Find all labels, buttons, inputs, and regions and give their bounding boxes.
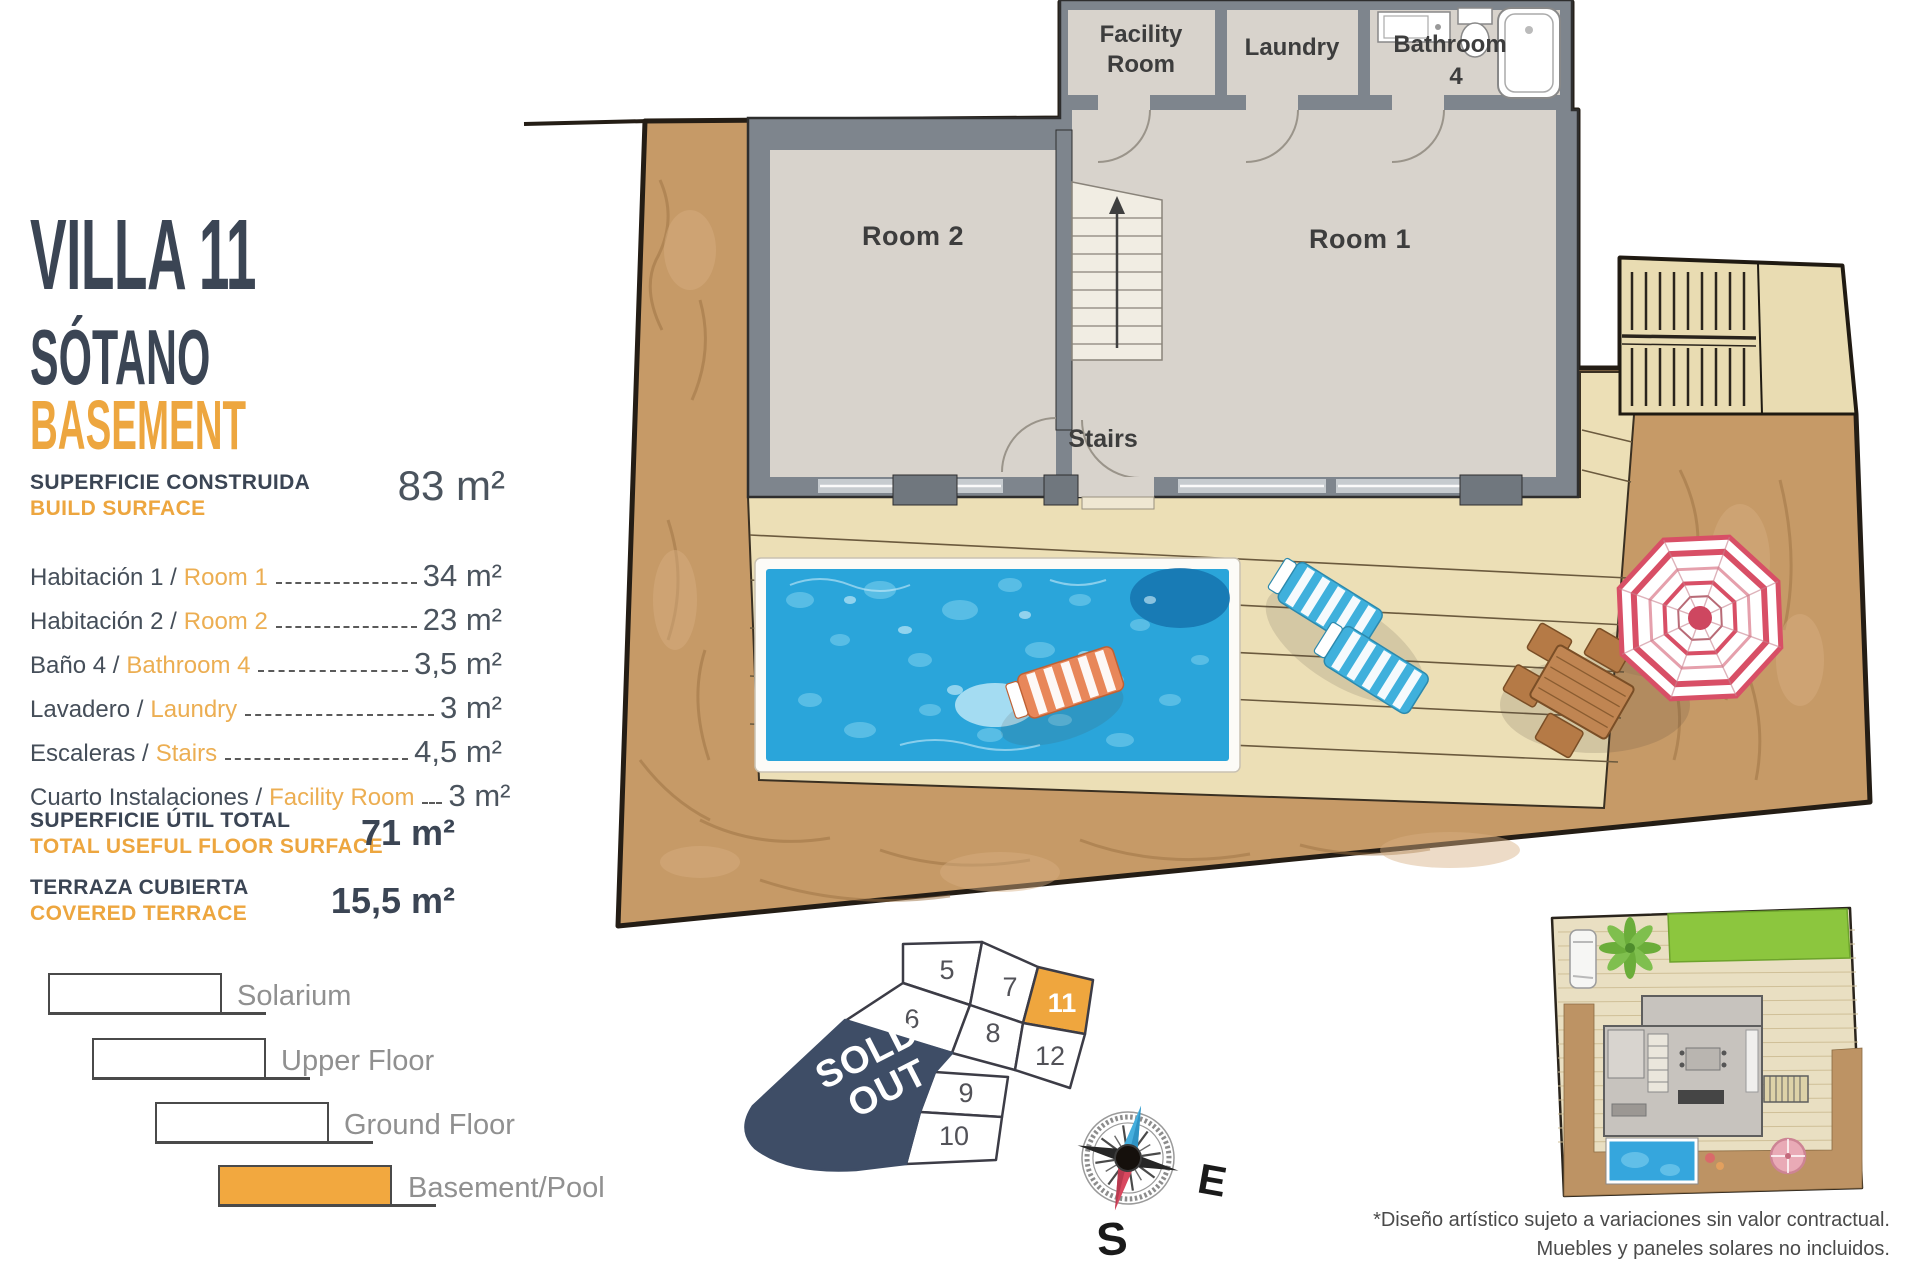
- compass-east-label: E: [1194, 1155, 1230, 1206]
- external-staircase: [1620, 258, 1856, 414]
- villa-title: VILLA 11: [30, 205, 256, 305]
- row-label-en: Room 1: [184, 564, 268, 596]
- legend-bar-solarium: [48, 973, 222, 1015]
- legend-line: [218, 1204, 436, 1207]
- stairs-treads: [1072, 182, 1162, 360]
- mini-pool: [1606, 1138, 1698, 1184]
- mini-palm-tree: [1599, 917, 1661, 979]
- key-plot-12-label: 12: [1035, 1041, 1065, 1071]
- row-value: 3 m²: [440, 690, 502, 728]
- disclaimer-line-2: Muebles y paneles solares no incluidos.: [1373, 1235, 1890, 1264]
- row-label-en: Stairs: [156, 740, 217, 772]
- row-label-en: Bathroom 4: [126, 652, 250, 684]
- dotted-leader: [258, 670, 408, 672]
- legend-label-ground-floor: Ground Floor: [344, 1109, 515, 1142]
- row-value: 3,5 m²: [414, 646, 502, 684]
- stairs-label: Stairs: [1068, 425, 1137, 453]
- dotted-leader: [225, 758, 408, 760]
- floor-title-es: SÓTANO: [30, 318, 210, 396]
- legend-line: [92, 1077, 310, 1080]
- table-row: Escaleras / Stairs 4,5 m²: [30, 728, 502, 772]
- bathtub-icon: [1498, 8, 1560, 98]
- room2-floor: [770, 150, 1056, 477]
- disclaimer-line-1: *Diseño artístico sujeto a variaciones s…: [1373, 1206, 1890, 1235]
- room2-label: Room 2: [862, 221, 964, 251]
- row-label-es: Habitación 1 /: [30, 564, 177, 596]
- mini-car: [1570, 930, 1596, 988]
- dotted-leader: [422, 802, 442, 804]
- dotted-leader: [245, 714, 434, 716]
- key-plot-9-label: 9: [958, 1078, 973, 1108]
- compass-icon: [1064, 1093, 1191, 1223]
- table-row: Habitación 1 / Room 1 34 m²: [30, 552, 502, 596]
- mini-deco-red: [1705, 1153, 1715, 1163]
- legend-line: [155, 1141, 373, 1144]
- row-value: 34 m²: [423, 558, 502, 596]
- mini-ext-stair: [1764, 1076, 1808, 1102]
- mini-site-plan: [1552, 908, 1862, 1196]
- key-plot-7-label: 7: [1002, 972, 1017, 1002]
- room1-label: Room 1: [1309, 224, 1411, 254]
- dotted-leader: [276, 626, 417, 628]
- compass-south-label: S: [1094, 1211, 1129, 1265]
- covered-terrace-value: 15,5 m²: [300, 880, 455, 922]
- facility-room-label-2: Room: [1107, 51, 1175, 78]
- table-row: Baño 4 / Bathroom 4 3,5 m²: [30, 640, 502, 684]
- legend-bar-ground-floor: [155, 1102, 329, 1144]
- key-plot-11-label: 11: [1048, 988, 1077, 1018]
- total-useful-value: 71 m²: [300, 812, 455, 854]
- row-label-es: Baño 4 /: [30, 652, 119, 684]
- row-value: 23 m²: [423, 602, 502, 640]
- mini-deco-orange: [1716, 1162, 1724, 1170]
- row-value: 4,5 m²: [414, 734, 502, 772]
- legend-label-upper-floor: Upper Floor: [281, 1045, 434, 1078]
- bathroom-label-1: Bathroom: [1393, 31, 1506, 58]
- legend-label-solarium: Solarium: [237, 980, 351, 1013]
- key-plot-5-label: 5: [939, 955, 954, 985]
- row-label-es: Lavadero /: [30, 696, 143, 728]
- dotted-leader: [276, 582, 417, 584]
- key-plot-8-label: 8: [985, 1018, 1000, 1048]
- mini-parasol: [1771, 1139, 1805, 1173]
- table-row: Lavadero / Laundry 3 m²: [30, 684, 502, 728]
- row-label-en: Room 2: [184, 608, 268, 640]
- row-label-es: Habitación 2 /: [30, 608, 177, 640]
- swimming-pool: [755, 558, 1240, 772]
- mini-lawn: [1668, 909, 1850, 962]
- build-surface-value: 83 m²: [375, 462, 505, 510]
- floor-title-en: BASEMENT: [30, 390, 246, 460]
- building: Room 2 Room 1 Stairs Facility Room Laund…: [748, 0, 1578, 509]
- legend-bar-upper-floor: [92, 1038, 266, 1080]
- table-row: Habitación 2 / Room 2 23 m²: [30, 596, 502, 640]
- legend-label-basement-pool: Basement/Pool: [408, 1172, 605, 1205]
- row-label-es: Escaleras /: [30, 740, 149, 772]
- plot-boundary-line: [524, 121, 648, 124]
- key-plot-10-label: 10: [939, 1121, 969, 1151]
- legend-bar-basement-pool: [218, 1165, 392, 1207]
- facility-room-label-1: Facility: [1100, 21, 1183, 48]
- row-label-en: Laundry: [150, 696, 237, 728]
- disclaimer: *Diseño artístico sujeto a variaciones s…: [1373, 1206, 1890, 1264]
- surface-table: Habitación 1 / Room 1 34 m² Habitación 2…: [30, 552, 502, 816]
- laundry-label: Laundry: [1245, 34, 1340, 61]
- legend-line: [48, 1012, 266, 1015]
- bathroom-label-2: 4: [1449, 63, 1463, 90]
